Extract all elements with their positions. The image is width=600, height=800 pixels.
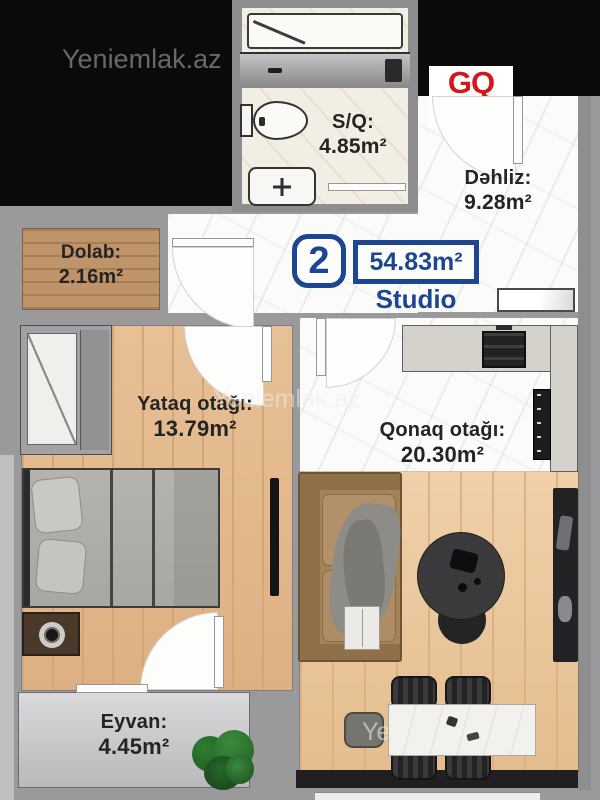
kitchen-counter-column: [550, 325, 578, 472]
sink: [248, 167, 316, 206]
pillow: [35, 538, 87, 595]
entrance-door-leaf: [513, 96, 523, 164]
bathroom-area: 4.85m²: [300, 134, 406, 159]
sofa-backrest: [300, 488, 320, 646]
room-closet-label: Dolab: 2.16m²: [24, 242, 158, 289]
toilet-tank: [240, 104, 253, 137]
washing-machine-panel: [385, 59, 402, 82]
stove-hood-knob: [496, 325, 512, 330]
living-name: Qonaq otağı:: [335, 418, 550, 442]
balcony-name: Eyvan:: [48, 710, 220, 734]
living-door-leaf: [316, 318, 326, 376]
bed-fold-line: [152, 470, 155, 606]
room-living-label: Qonaq otağı: 20.30m²: [335, 418, 550, 468]
bedroom-door-leaf: [262, 326, 272, 382]
room-bathroom-label: S/Q: 4.85m²: [300, 110, 406, 159]
bed: [22, 468, 220, 608]
closet-area: 2.16m²: [24, 265, 158, 289]
bathroom-name: S/Q:: [300, 110, 406, 134]
bottom-window-bar: [315, 792, 540, 800]
tv-stand-item: [558, 596, 572, 622]
hallway-name: Dəhliz:: [423, 166, 573, 190]
wardrobe-door-panel: [27, 333, 77, 445]
book: [344, 606, 380, 650]
apartment-number: 2: [297, 239, 341, 283]
hallway-area: 9.28m²: [423, 190, 573, 215]
corridor-door-arc: [172, 247, 254, 329]
plant-leaf-cluster: [226, 754, 254, 784]
toilet-button: [259, 117, 265, 126]
apartment-type-label: Studio: [353, 284, 479, 315]
washing-machine: [240, 52, 410, 88]
balcony-door-leaf: [214, 616, 224, 688]
pillow: [30, 476, 83, 535]
watermark-middle: Yeniemlak.az: [213, 385, 361, 414]
table-decor: [466, 732, 479, 742]
balcony-area: 4.45m²: [48, 734, 220, 760]
coffee-table-cup: [474, 578, 481, 585]
right-outer-wall: [578, 96, 591, 790]
nightstand: [22, 612, 80, 656]
bed-fold-line: [110, 470, 113, 606]
bedroom-tv: [270, 478, 279, 596]
gq-logo-text: GQ: [429, 66, 513, 100]
closet-name: Dolab:: [24, 242, 158, 265]
table-decor: [446, 716, 458, 728]
coffee-table-cup: [458, 583, 467, 592]
bathtub: [247, 13, 403, 49]
living-area: 20.30m²: [335, 442, 550, 468]
bathroom-door-leaf: [328, 183, 406, 191]
floor-plan: Yeniemlak.az S/Q: 4.85m² GQ Dəhliz: 9.28…: [0, 0, 600, 800]
coffee-table-tray: [449, 548, 479, 574]
window-sill: [296, 770, 578, 788]
tv-stand: [553, 488, 578, 662]
watermark-top: Yeniemlak.az: [62, 44, 222, 75]
bathtub-slope-line: [253, 20, 306, 45]
apartment-number-badge: 2: [292, 234, 346, 288]
corridor-door-leaf: [172, 238, 254, 247]
coffee-table: [417, 532, 505, 620]
shoe-bench: [497, 288, 575, 312]
total-area-value: 54.83m²: [358, 245, 474, 279]
washing-machine-handle: [268, 68, 282, 73]
bed-blanket-foot: [174, 470, 218, 606]
stove: [482, 331, 526, 368]
room-balcony-label: Eyvan: 4.45m²: [48, 710, 220, 760]
bed-headboard: [24, 470, 30, 606]
masked-area-top-left: [0, 0, 232, 206]
total-area-badge: 54.83m²: [353, 240, 479, 284]
tv-stand-item: [556, 515, 574, 550]
room-hallway-label: Dəhliz: 9.28m²: [423, 166, 573, 215]
left-outer-ledge: [0, 455, 14, 800]
dining-table: [388, 704, 536, 756]
balcony-threshold: [76, 684, 148, 693]
bedroom-area: 13.79m²: [90, 416, 300, 442]
lamp: [39, 622, 65, 648]
